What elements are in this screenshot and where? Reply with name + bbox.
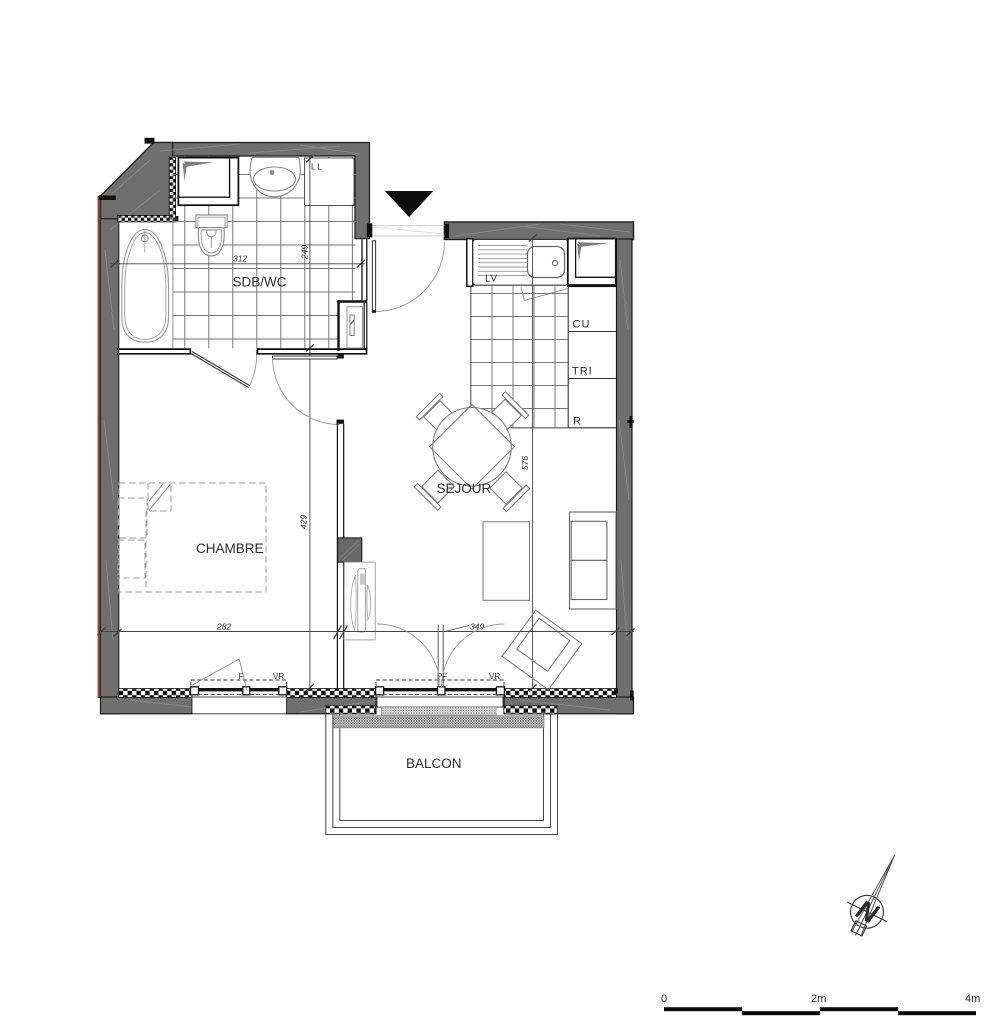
svg-text:SDB/WC: SDB/WC [233,275,287,290]
svg-text:2m: 2m [811,993,826,1005]
svg-text:VR: VR [273,672,284,681]
svg-text:SEJOUR: SEJOUR [437,481,492,496]
svg-text:F: F [239,672,244,681]
svg-text:249: 249 [300,245,310,261]
svg-text:576: 576 [520,456,530,471]
svg-text:4m: 4m [965,993,980,1005]
svg-text:VR: VR [489,672,500,681]
svg-text:0: 0 [661,993,667,1005]
svg-text:R: R [573,416,581,428]
svg-text:TRI: TRI [572,366,593,378]
svg-text:CU: CU [573,319,591,331]
svg-text:282: 282 [216,622,232,632]
svg-text:CHAMBRE: CHAMBRE [196,541,264,556]
svg-text:BALCON: BALCON [406,756,462,771]
svg-text:429: 429 [299,515,309,530]
svg-text:LV: LV [485,274,498,285]
svg-text:312: 312 [233,254,248,264]
svg-text:LL: LL [311,162,323,172]
